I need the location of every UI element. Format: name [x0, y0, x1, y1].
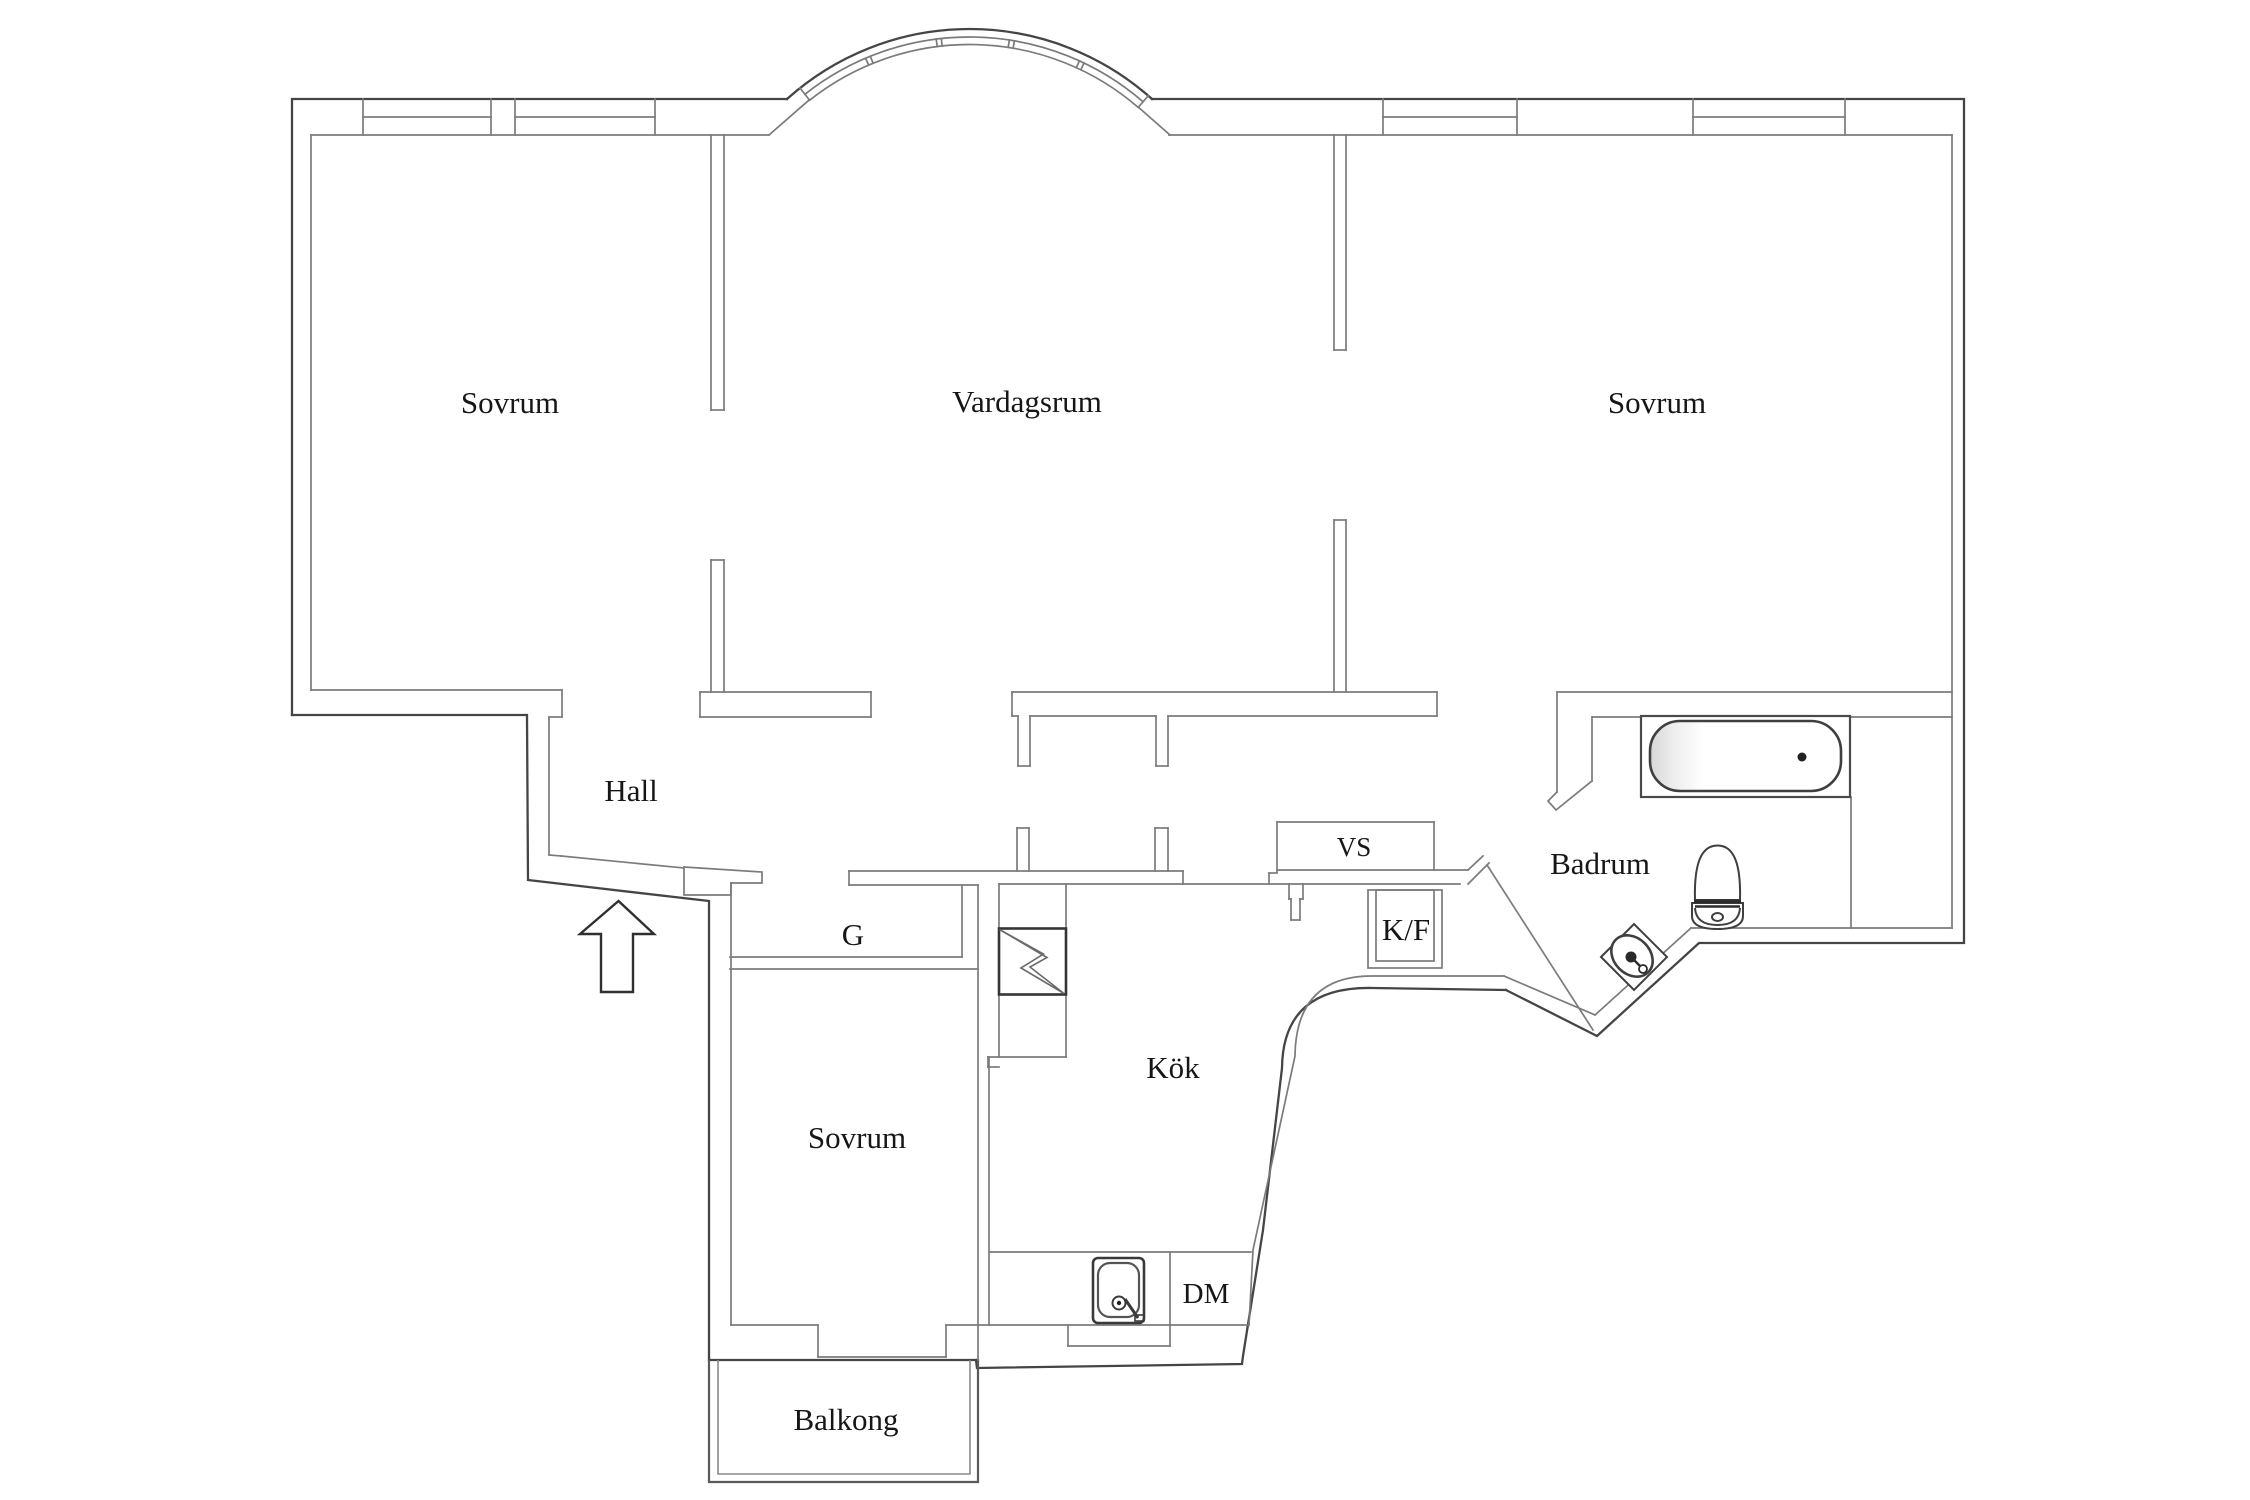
svg-text:Kök: Kök [1146, 1050, 1200, 1085]
svg-text:Hall: Hall [604, 773, 657, 808]
svg-text:VS: VS [1337, 832, 1372, 862]
svg-text:Sovrum: Sovrum [808, 1120, 906, 1155]
svg-text:Badrum: Badrum [1550, 846, 1650, 881]
svg-text:DM: DM [1183, 1278, 1230, 1310]
svg-text:Vardagsrum: Vardagsrum [952, 384, 1102, 419]
svg-text:Balkong: Balkong [793, 1402, 898, 1437]
svg-text:K/F: K/F [1382, 912, 1430, 947]
svg-text:G: G [842, 917, 864, 952]
svg-text:Sovrum: Sovrum [1608, 385, 1706, 420]
svg-text:Sovrum: Sovrum [461, 385, 559, 420]
